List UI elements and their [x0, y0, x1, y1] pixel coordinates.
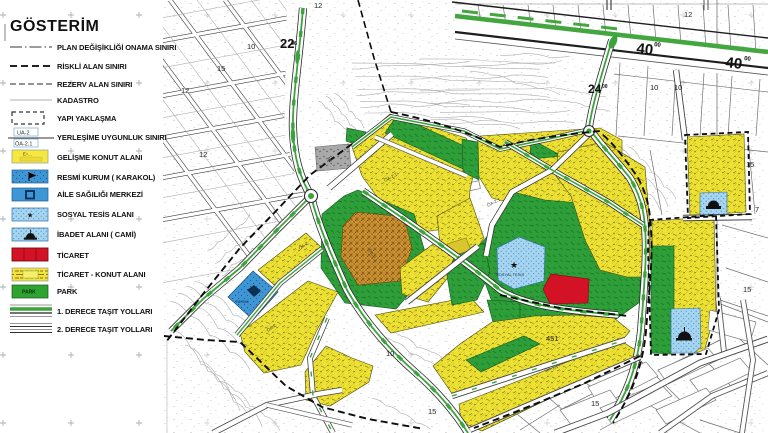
svg-text:1. DERECE TAŞIT YOLLARI: 1. DERECE TAŞIT YOLLARI [57, 307, 152, 316]
svg-text:RİSKLİ ALAN SINIRI: RİSKLİ ALAN SINIRI [57, 62, 127, 71]
svg-text:E=...: E=... [23, 152, 32, 157]
svg-text:40: 40 [636, 40, 655, 59]
svg-text:GELİŞME KONUT ALANI: GELİŞME KONUT ALANI [57, 153, 142, 162]
svg-text:PARK: PARK [22, 290, 36, 296]
svg-text:15: 15 [746, 160, 754, 169]
svg-text:UA-2: UA-2 [17, 131, 30, 137]
svg-text:YAPI YAKLAŞMA: YAPI YAKLAŞMA [57, 114, 117, 123]
svg-text:TİCARET: TİCARET [57, 251, 89, 260]
svg-text:AİLE SAĞILIĞI MERKEZİ: AİLE SAĞILIĞI MERKEZİ [57, 190, 143, 199]
svg-text:12: 12 [314, 1, 322, 10]
svg-text:15: 15 [591, 399, 599, 408]
svg-text:PLAN DEĞİŞİKLİĞİ ONAMA SINIRI: PLAN DEĞİŞİKLİĞİ ONAMA SINIRI [57, 43, 176, 52]
svg-text:10: 10 [247, 42, 255, 51]
svg-text:24: 24 [588, 82, 602, 96]
svg-text:10: 10 [650, 83, 658, 92]
svg-text:40: 40 [725, 54, 744, 73]
svg-text:15: 15 [217, 64, 225, 73]
svg-text:GÖSTERİM: GÖSTERİM [10, 16, 99, 35]
svg-text:RESMİ: RESMİ [236, 299, 249, 304]
svg-text:ÖA-2.1: ÖA-2.1 [15, 141, 32, 148]
svg-text:12: 12 [199, 150, 207, 159]
svg-text:PARK: PARK [57, 287, 78, 296]
svg-text:A: A [327, 157, 332, 164]
svg-text:YERLEŞİME UYGUNLUK SINIRI: YERLEŞİME UYGUNLUK SINIRI [57, 133, 167, 142]
svg-text:★: ★ [27, 212, 33, 220]
svg-text:12: 12 [684, 10, 692, 19]
svg-text:451: 451 [546, 334, 559, 343]
svg-text:15: 15 [743, 285, 751, 294]
svg-text:TİCARET - KONUT ALANI: TİCARET - KONUT ALANI [57, 270, 145, 279]
svg-text:★: ★ [510, 260, 518, 270]
svg-text:RESMİ KURUM ( KARAKOL): RESMİ KURUM ( KARAKOL) [57, 173, 156, 182]
svg-text:96: 96 [291, 41, 297, 47]
svg-text:REZERV ALAN SINIRI: REZERV ALAN SINIRI [57, 80, 132, 89]
svg-text:KADASTRO: KADASTRO [57, 96, 99, 105]
svg-text:10: 10 [386, 349, 394, 358]
svg-text:00: 00 [602, 84, 608, 90]
svg-text:10: 10 [674, 83, 682, 92]
svg-text:İBADET ALANI ( CAMİ): İBADET ALANI ( CAMİ) [57, 230, 137, 239]
svg-text:SOSYAL TESİS: SOSYAL TESİS [496, 272, 524, 277]
svg-text:2. DERECE TAŞIT YOLLARI: 2. DERECE TAŞIT YOLLARI [57, 325, 152, 334]
svg-text:7: 7 [755, 205, 759, 214]
svg-text:15: 15 [428, 407, 436, 416]
svg-text:12: 12 [181, 86, 189, 95]
svg-text:SOSYAL TESİS ALANI: SOSYAL TESİS ALANI [57, 210, 134, 219]
